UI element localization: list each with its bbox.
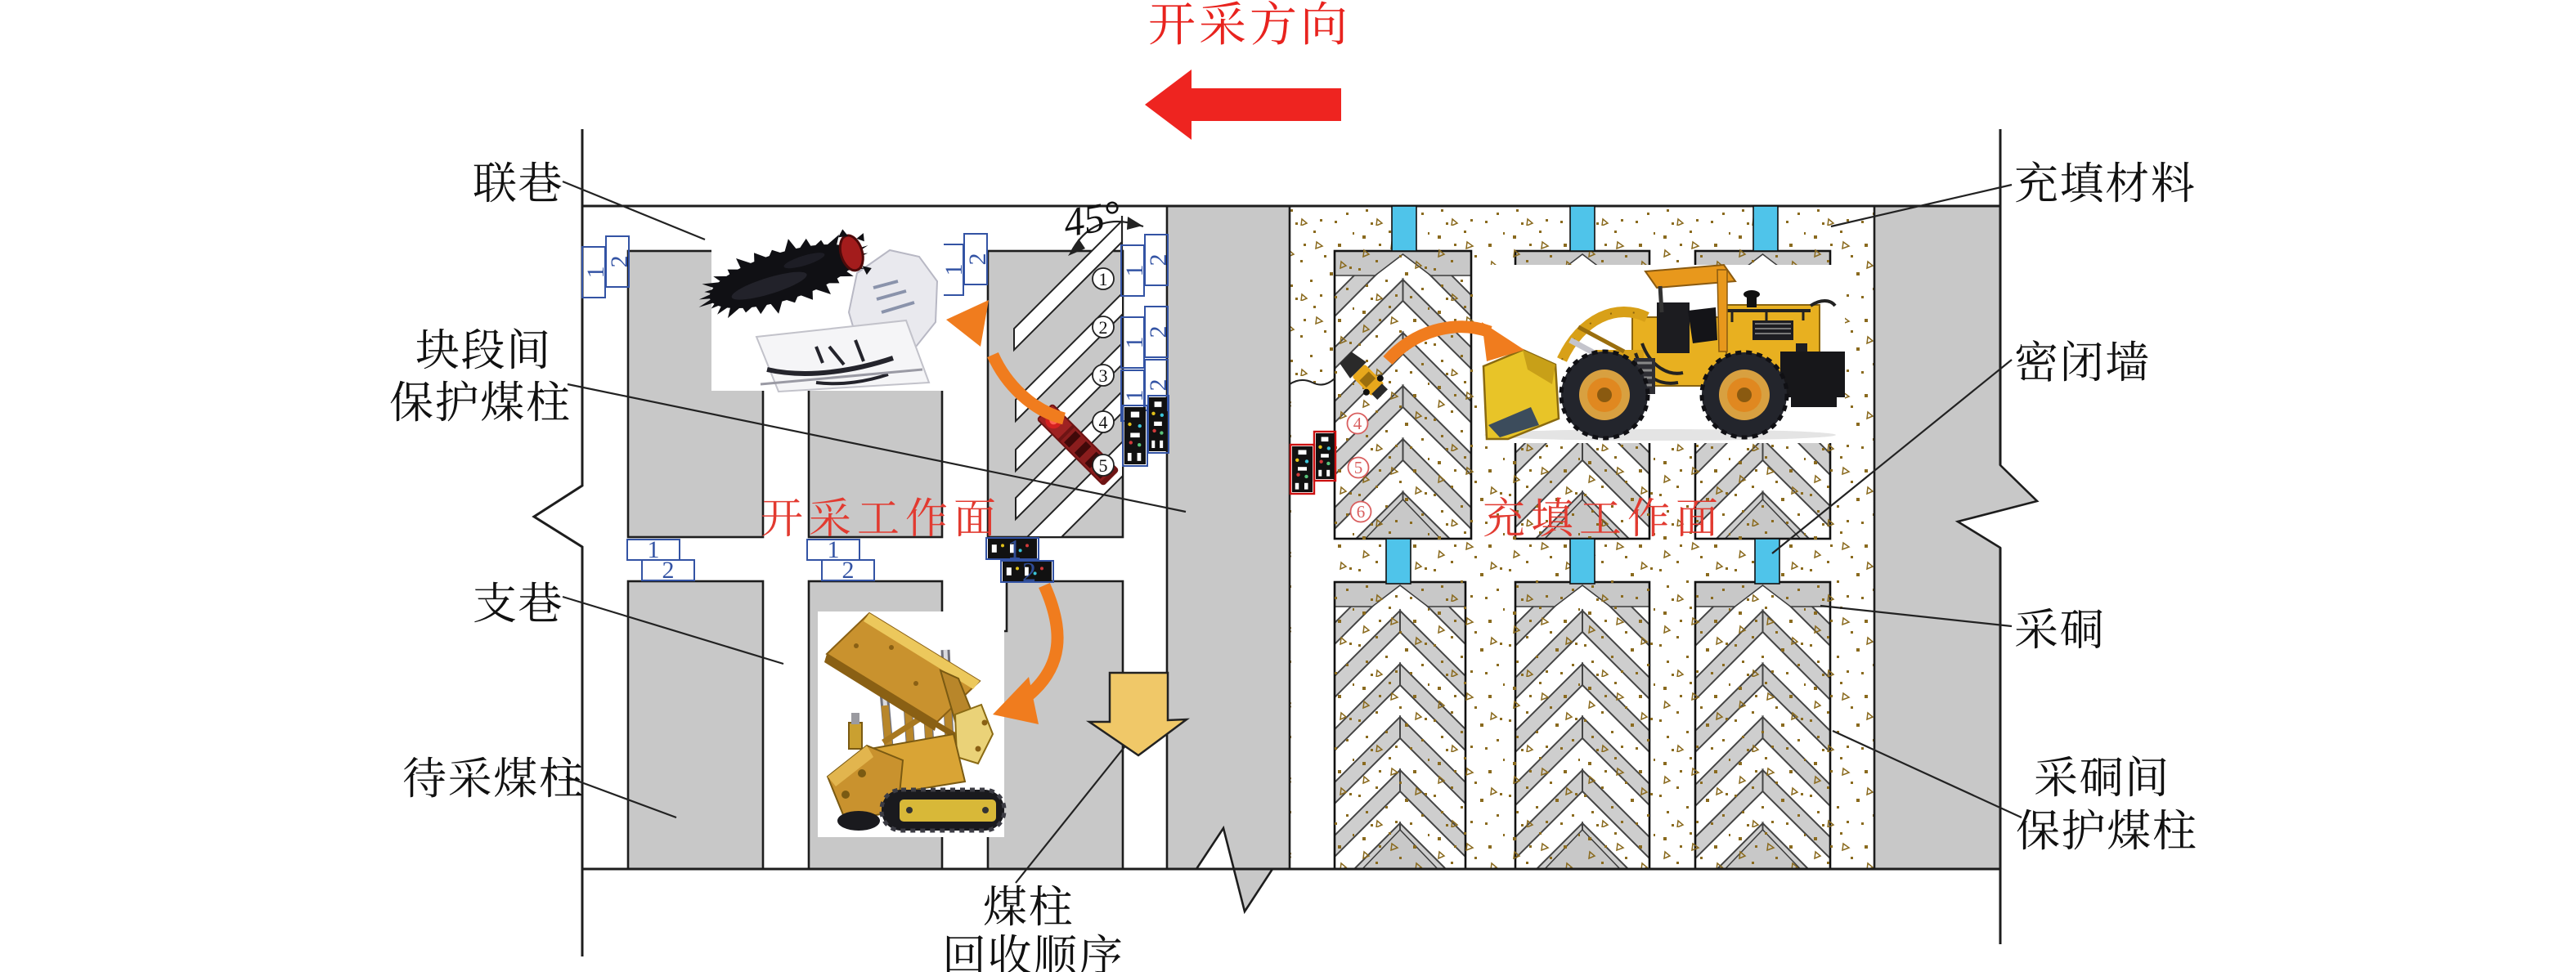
- svg-text:5: 5: [1099, 455, 1108, 476]
- svg-text:5: 5: [1354, 458, 1363, 477]
- svg-text:6: 6: [1357, 502, 1366, 522]
- svg-text:2: 2: [1145, 326, 1172, 338]
- svg-text:1: 1: [1099, 269, 1108, 289]
- svg-text:2: 2: [1145, 379, 1172, 392]
- svg-text:4: 4: [1099, 412, 1108, 432]
- svg-text:2: 2: [1099, 317, 1108, 338]
- svg-text:1: 1: [1008, 535, 1021, 565]
- svg-text:2: 2: [964, 253, 991, 266]
- svg-text:2: 2: [662, 557, 675, 584]
- svg-text:1: 1: [648, 536, 660, 563]
- svg-text:2: 2: [1145, 254, 1172, 267]
- svg-text:4: 4: [1353, 414, 1362, 433]
- svg-text:3: 3: [1099, 365, 1108, 386]
- svg-text:2: 2: [1022, 558, 1036, 588]
- svg-text:2: 2: [606, 256, 633, 268]
- svg-text:2: 2: [842, 557, 855, 584]
- svg-text:45°: 45°: [1060, 191, 1124, 246]
- svg-text:1: 1: [828, 536, 840, 563]
